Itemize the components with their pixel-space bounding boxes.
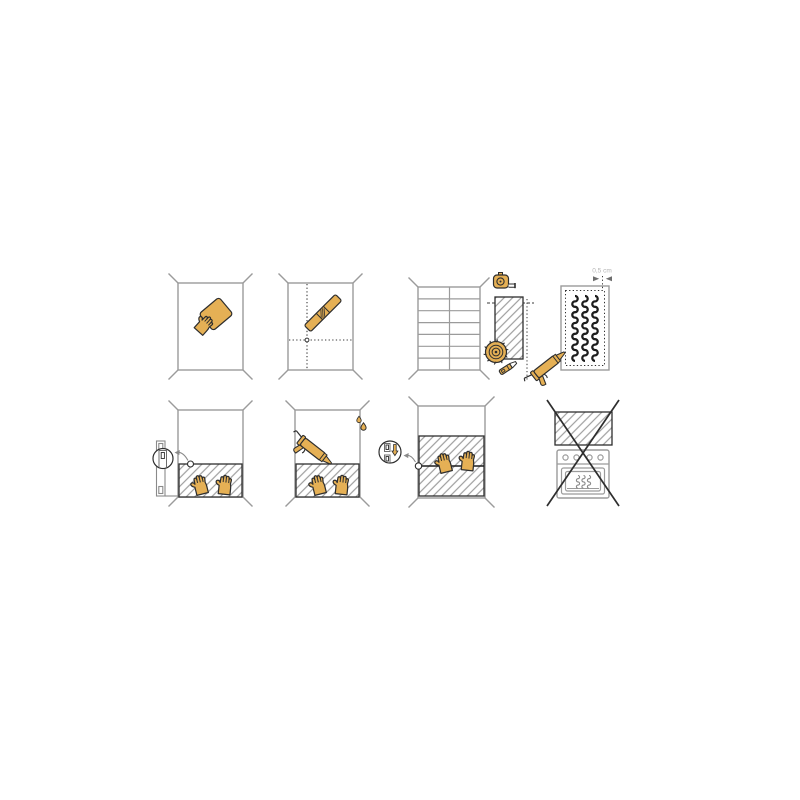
instruction-sheet: 0,5 cm [0, 0, 800, 800]
step-1-clean-wall [169, 274, 253, 380]
step-4-apply-adhesive: 0,5 cm [523, 268, 612, 394]
step-8-no-install-above-stove [547, 400, 619, 506]
pointer-arrow [404, 453, 416, 462]
tiled-wall-grid [409, 278, 490, 380]
step-7-slide-panel-into-joint [379, 397, 495, 508]
circular-saw-blade-icon [484, 340, 509, 365]
joint-point-marker [188, 461, 194, 467]
joint-point-marker [415, 463, 421, 469]
step-2-mark-guide-lines [279, 274, 363, 380]
sealant-drop-large-icon [361, 423, 366, 431]
intersection-marker [305, 338, 309, 342]
step-6-seal-top-edge [284, 401, 369, 507]
step-5-set-panel-on-trim [153, 401, 253, 507]
step-3-measure-and-cut [409, 273, 535, 381]
hatched-panel [296, 464, 359, 497]
measurement-label: 0,5 cm [592, 268, 612, 275]
stove-oven-icon [557, 450, 609, 498]
wall-outline [279, 274, 363, 380]
pictogram-scene: 0,5 cm [0, 0, 800, 800]
measuring-tape-icon [494, 273, 516, 289]
trim-detail-zoom [159, 451, 167, 469]
hatched-panel [179, 464, 242, 497]
hatched-panel [555, 412, 612, 445]
